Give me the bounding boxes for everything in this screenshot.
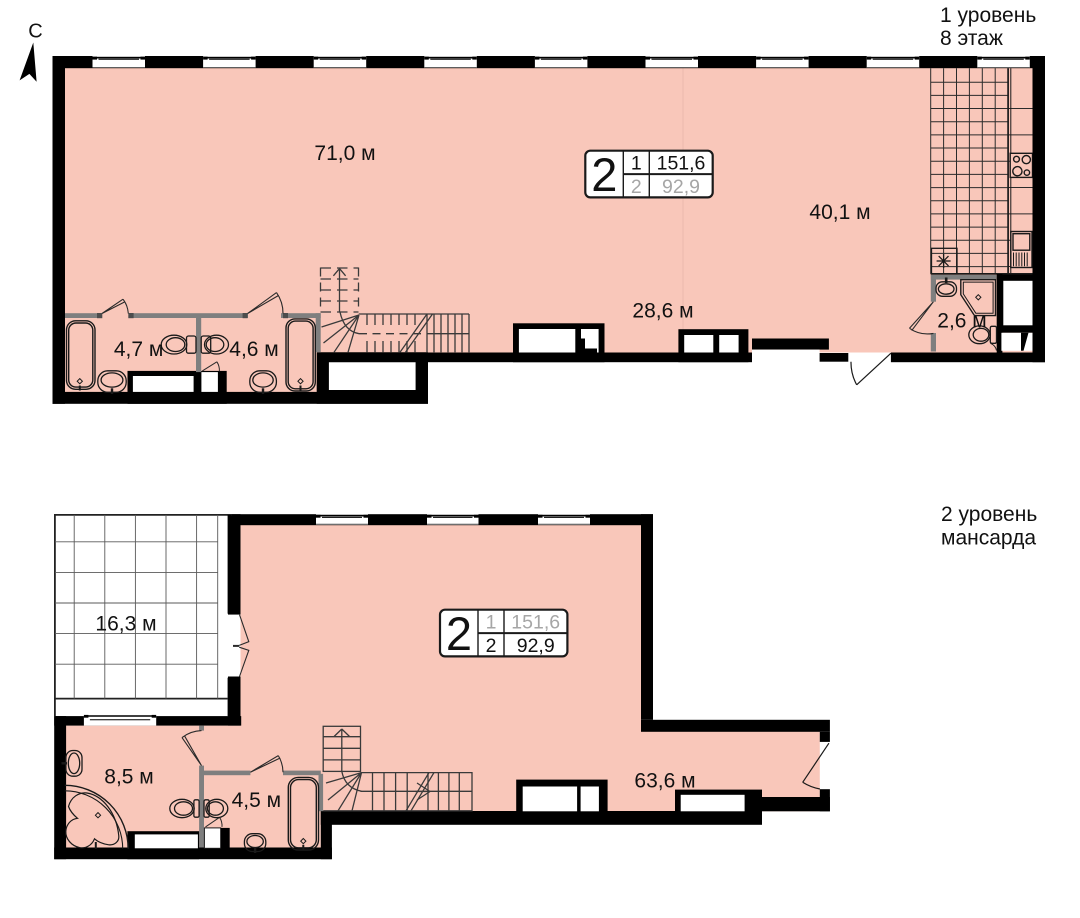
svg-text:4,7 м: 4,7 м [114,338,163,361]
svg-text:2,6 м: 2,6 м [937,310,986,333]
svg-text:40,1 м: 40,1 м [809,201,870,224]
svg-text:2: 2 [446,607,472,660]
svg-text:1: 1 [631,153,642,175]
svg-text:4,5 м: 4,5 м [232,789,281,812]
svg-text:2: 2 [631,176,642,198]
svg-text:2: 2 [591,148,617,201]
svg-text:1: 1 [486,612,497,634]
svg-text:28,6 м: 28,6 м [632,300,693,323]
svg-text:92,9: 92,9 [662,176,700,198]
svg-text:4,6 м: 4,6 м [229,338,278,361]
svg-text:С: С [28,21,42,43]
svg-text:92,9: 92,9 [517,635,555,657]
svg-text:8 этаж: 8 этаж [940,27,1003,50]
svg-text:2 уровень: 2 уровень [941,503,1037,526]
svg-text:16,3 м: 16,3 м [95,613,156,636]
svg-text:151,6: 151,6 [657,153,706,175]
svg-text:2: 2 [486,635,497,657]
svg-text:1 уровень: 1 уровень [940,4,1036,27]
svg-text:71,0 м: 71,0 м [314,142,375,165]
svg-text:63,6 м: 63,6 м [634,770,695,793]
svg-text:8,5 м: 8,5 м [104,766,153,789]
svg-text:мансарда: мансарда [941,527,1036,550]
svg-text:151,6: 151,6 [511,612,560,634]
